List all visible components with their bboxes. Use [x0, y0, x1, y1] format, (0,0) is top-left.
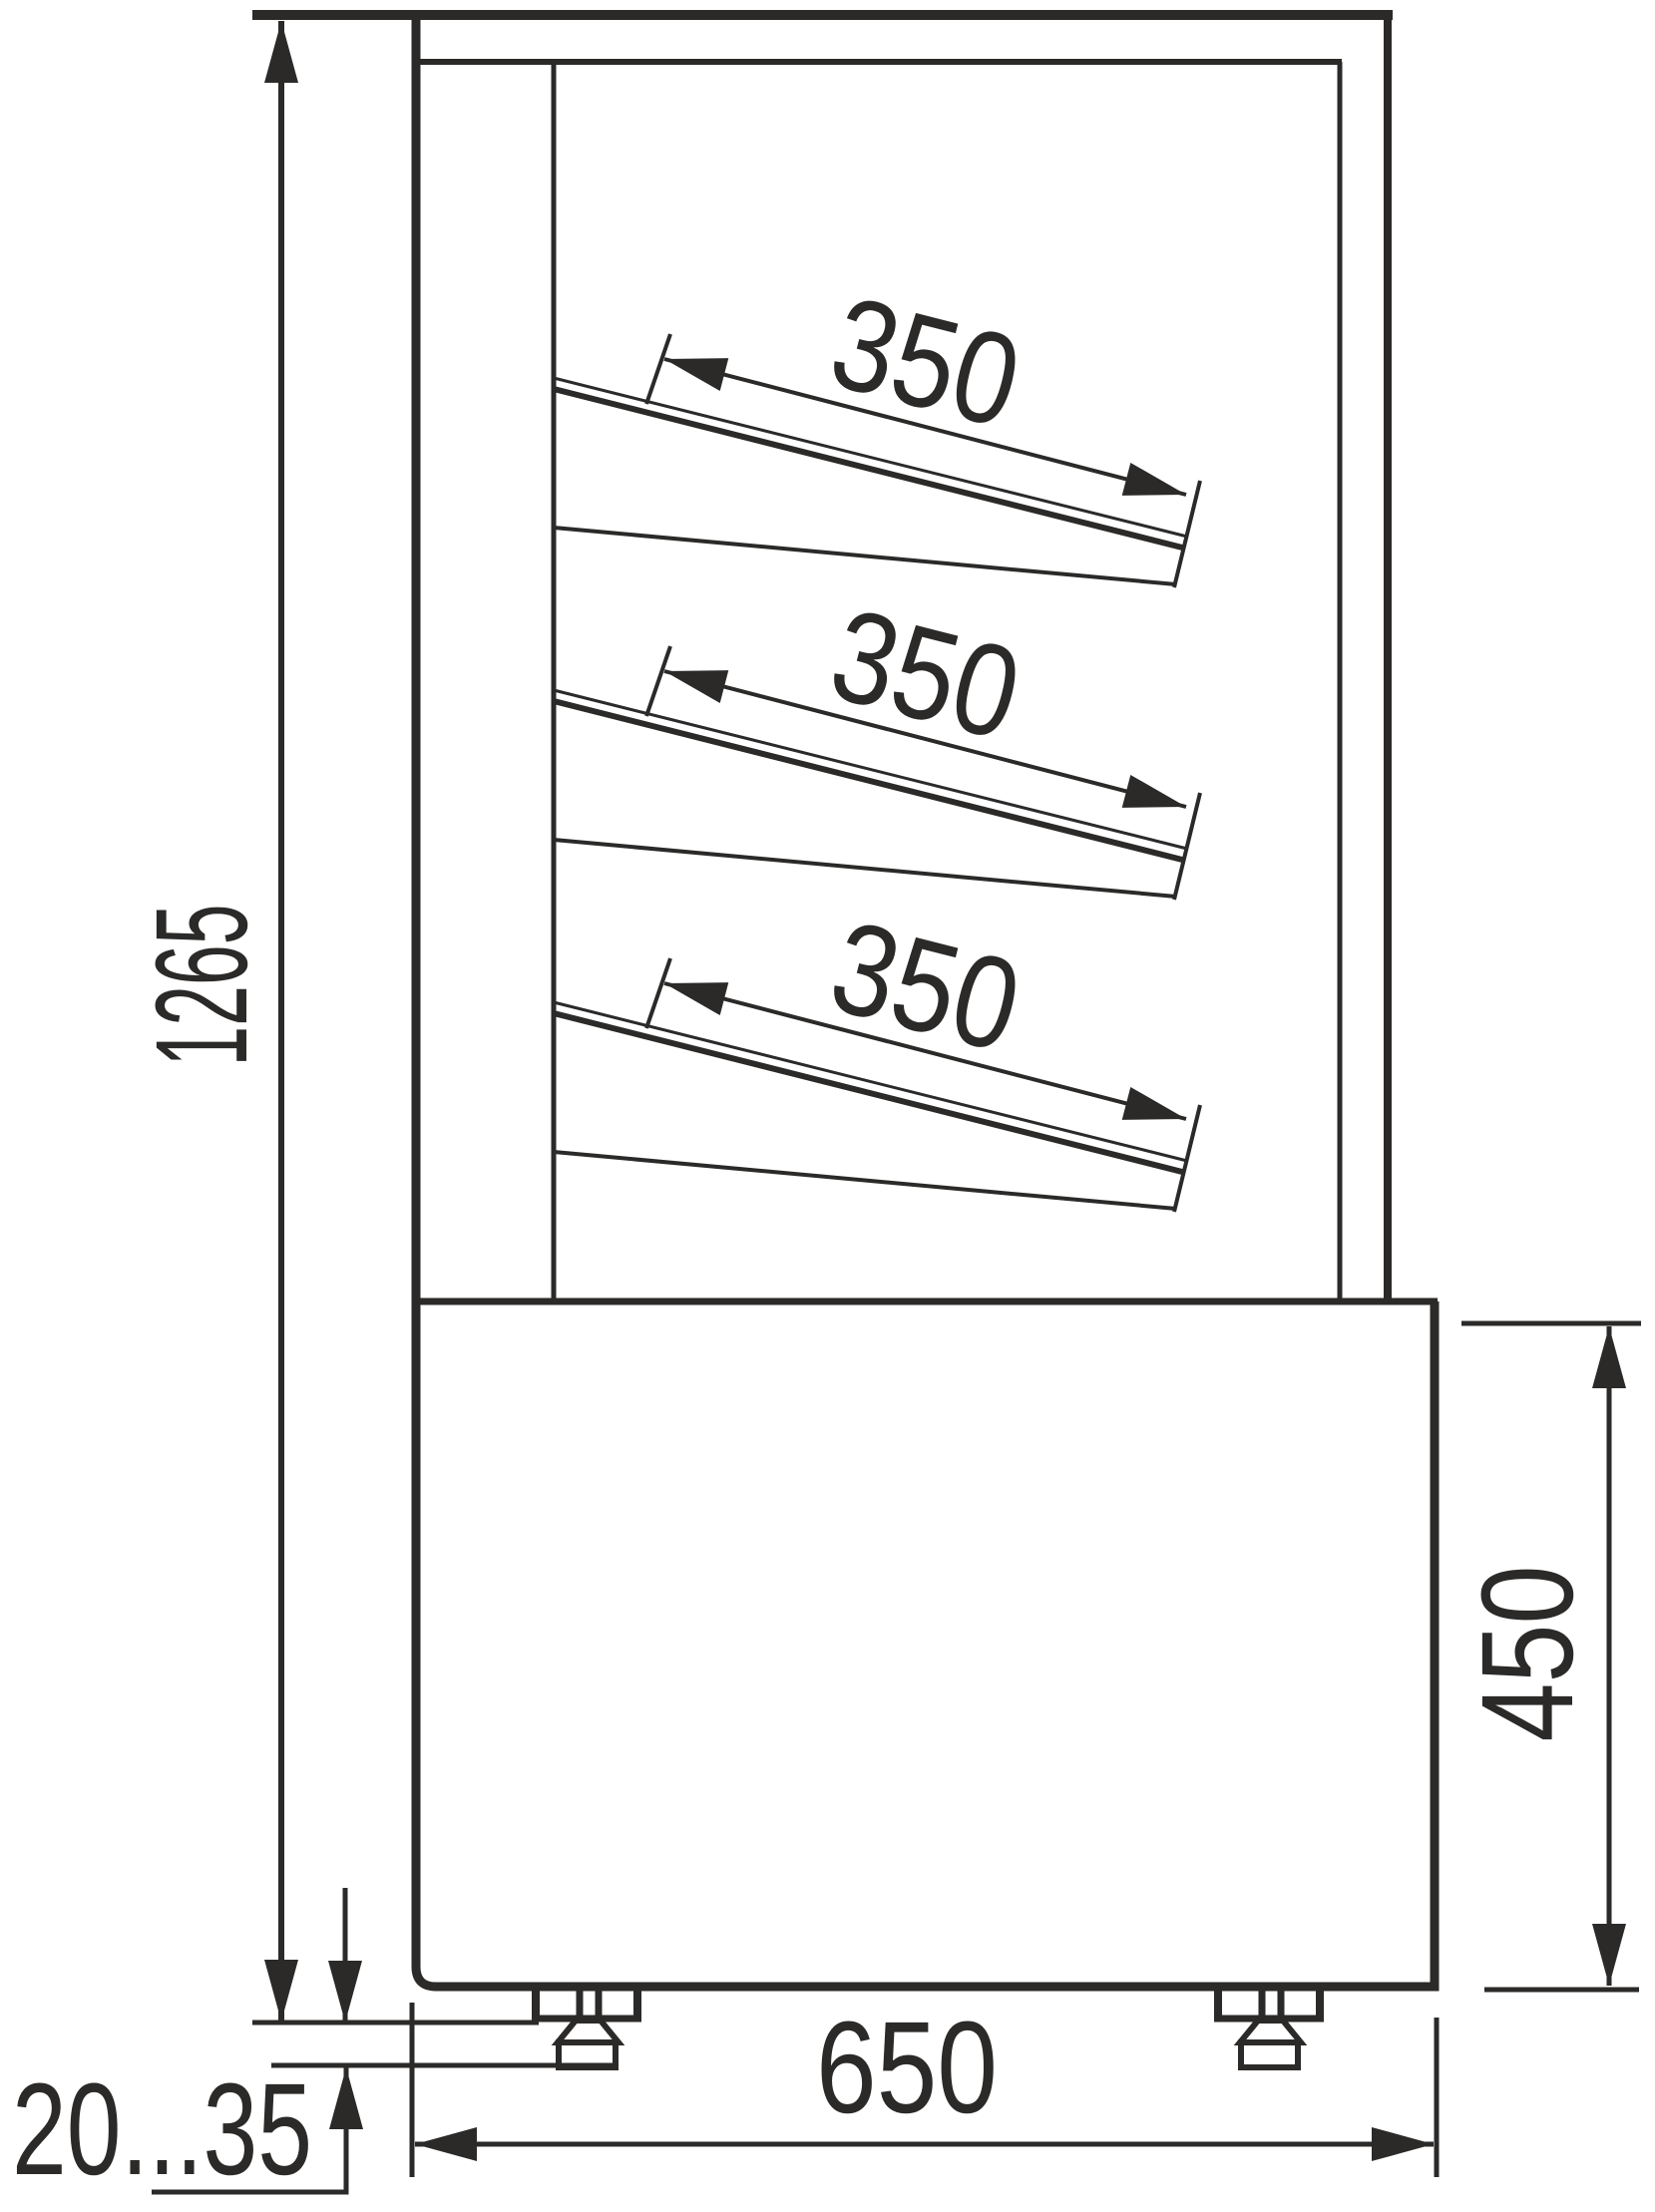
dim-650-label: 650: [816, 1994, 998, 2140]
shelf-3-underside: [554, 1152, 1176, 1209]
shelf-2-underside: [554, 840, 1176, 897]
dimension-overall-height: 1265: [128, 21, 281, 2022]
shelf-3: 350: [554, 892, 1200, 1212]
left-foot: [532, 1987, 641, 2067]
shelf-1-underside: [554, 528, 1176, 584]
shelf-1-back-tick: [646, 334, 670, 404]
dimension-foot-range: 20...35: [12, 1888, 616, 2202]
technical-drawing-page: 350 350 350: [0, 0, 1655, 2212]
shelf-2: 350: [554, 579, 1200, 900]
shelf-1: 350: [554, 267, 1200, 587]
foot-range-label: 20...35: [12, 2055, 312, 2202]
dim-1265-label: 1265: [128, 905, 274, 1067]
display-case-dimension-drawing: 350 350 350: [0, 0, 1655, 2212]
right-foot: [1214, 1987, 1324, 2067]
shelf-3-back-tick: [646, 958, 670, 1028]
shelf-2-back-tick: [646, 646, 670, 716]
right-foot-pad: [1241, 2042, 1298, 2067]
shelf-1-depth-label: 350: [818, 267, 1034, 455]
shelf-2-depth-label: 350: [818, 579, 1034, 767]
left-foot-cone: [558, 2021, 619, 2042]
dimension-base-height: 450: [1453, 1323, 1641, 1990]
dim-450-label: 450: [1453, 1566, 1600, 1742]
right-foot-cone: [1240, 2021, 1301, 2042]
shelf-3-depth-label: 350: [818, 892, 1034, 1079]
